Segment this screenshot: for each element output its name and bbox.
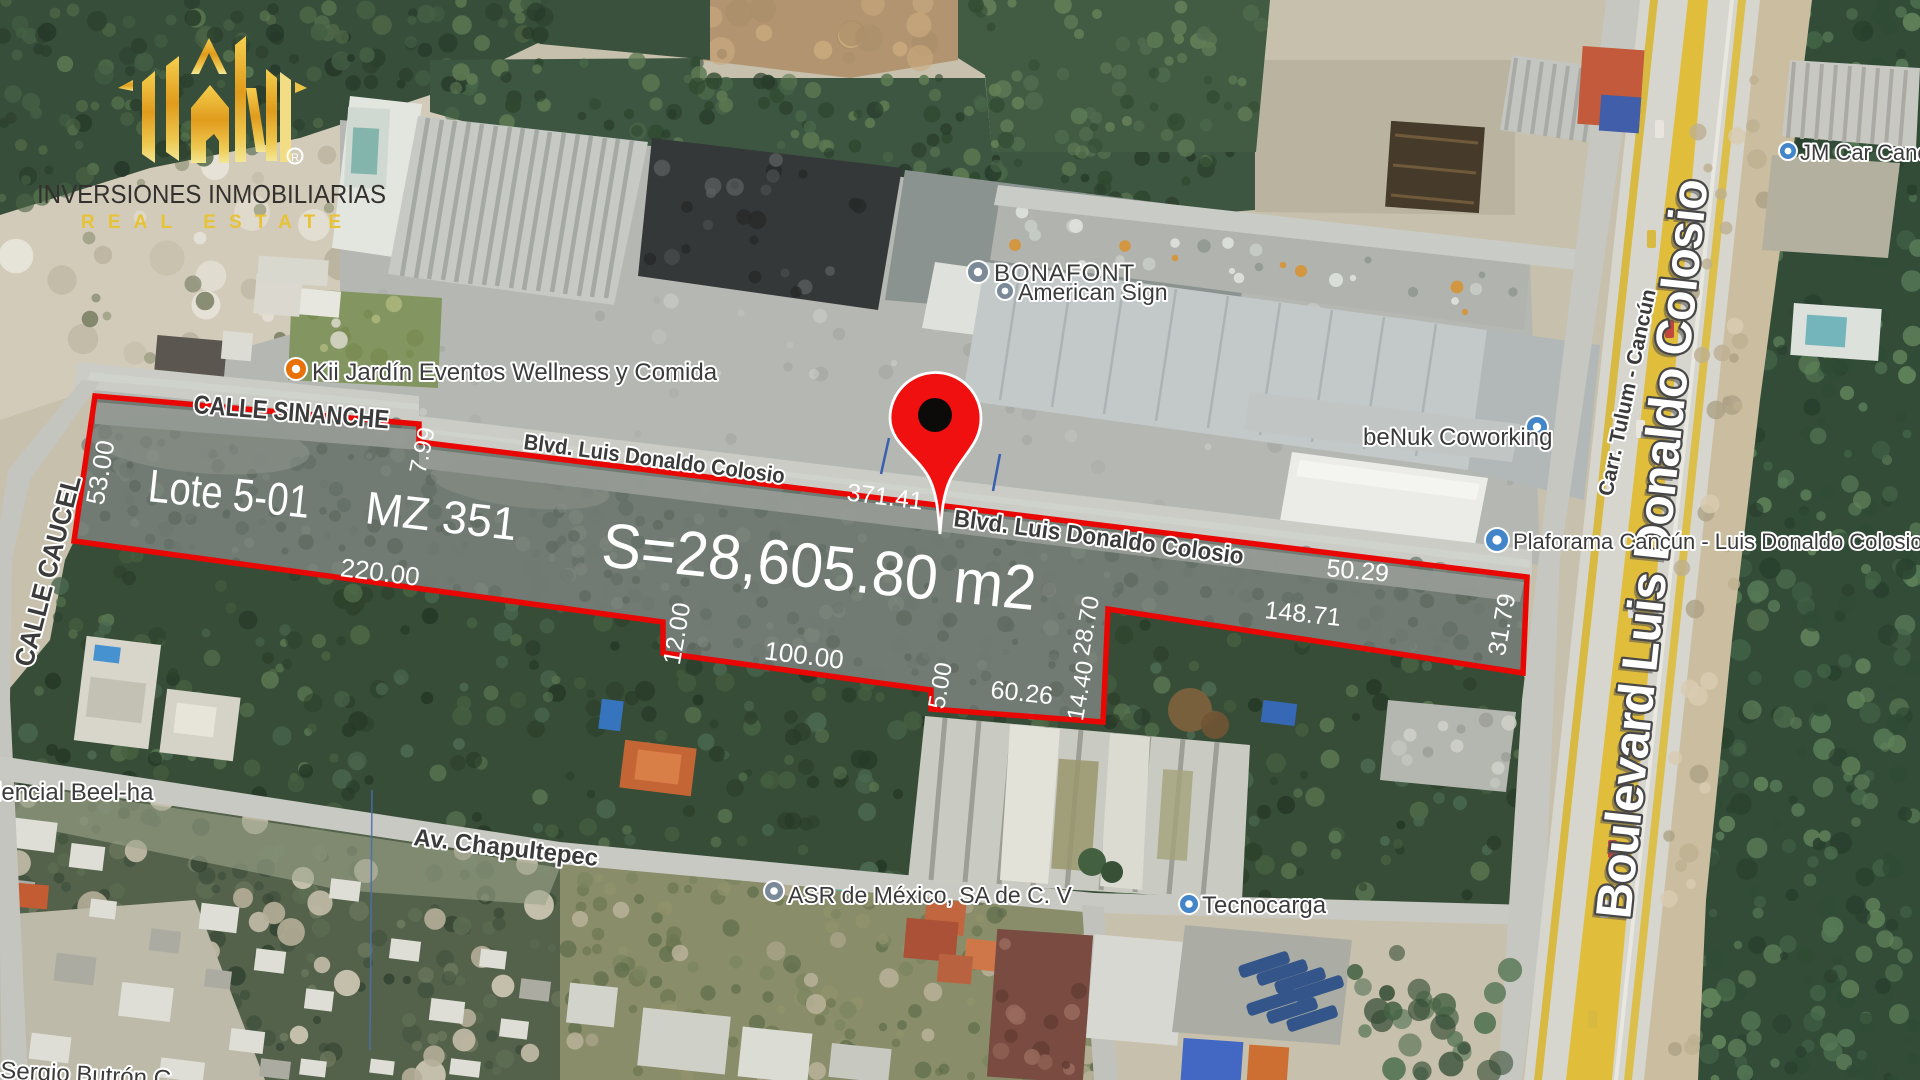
svg-text:Tecnocarga: Tecnocarga — [1202, 892, 1327, 919]
svg-text:Kii Jardín Eventos Wellness y: Kii Jardín Eventos Wellness y Comida — [312, 359, 718, 386]
svg-text:Residencial Beel-ha: Residencial Beel-ha — [0, 779, 154, 806]
svg-text:ASR de México, SA de C. V: ASR de México, SA de C. V — [788, 882, 1072, 908]
svg-text:Plaforama Cancún - Luis Donal: Plaforama Cancún - Luis Donaldo Colosio — [1513, 529, 1920, 554]
svg-text:American Sign: American Sign — [1018, 279, 1168, 305]
svg-text:50.29: 50.29 — [1325, 554, 1390, 587]
svg-text:R: R — [291, 152, 299, 164]
svg-text:JM Car Cancún: JM Car Cancún — [1800, 140, 1920, 165]
svg-text:INVERSIONES INMOBILIARIAS: INVERSIONES INMOBILIARIAS — [37, 179, 386, 209]
svg-text:beNuk Coworking: beNuk Coworking — [1363, 424, 1552, 451]
